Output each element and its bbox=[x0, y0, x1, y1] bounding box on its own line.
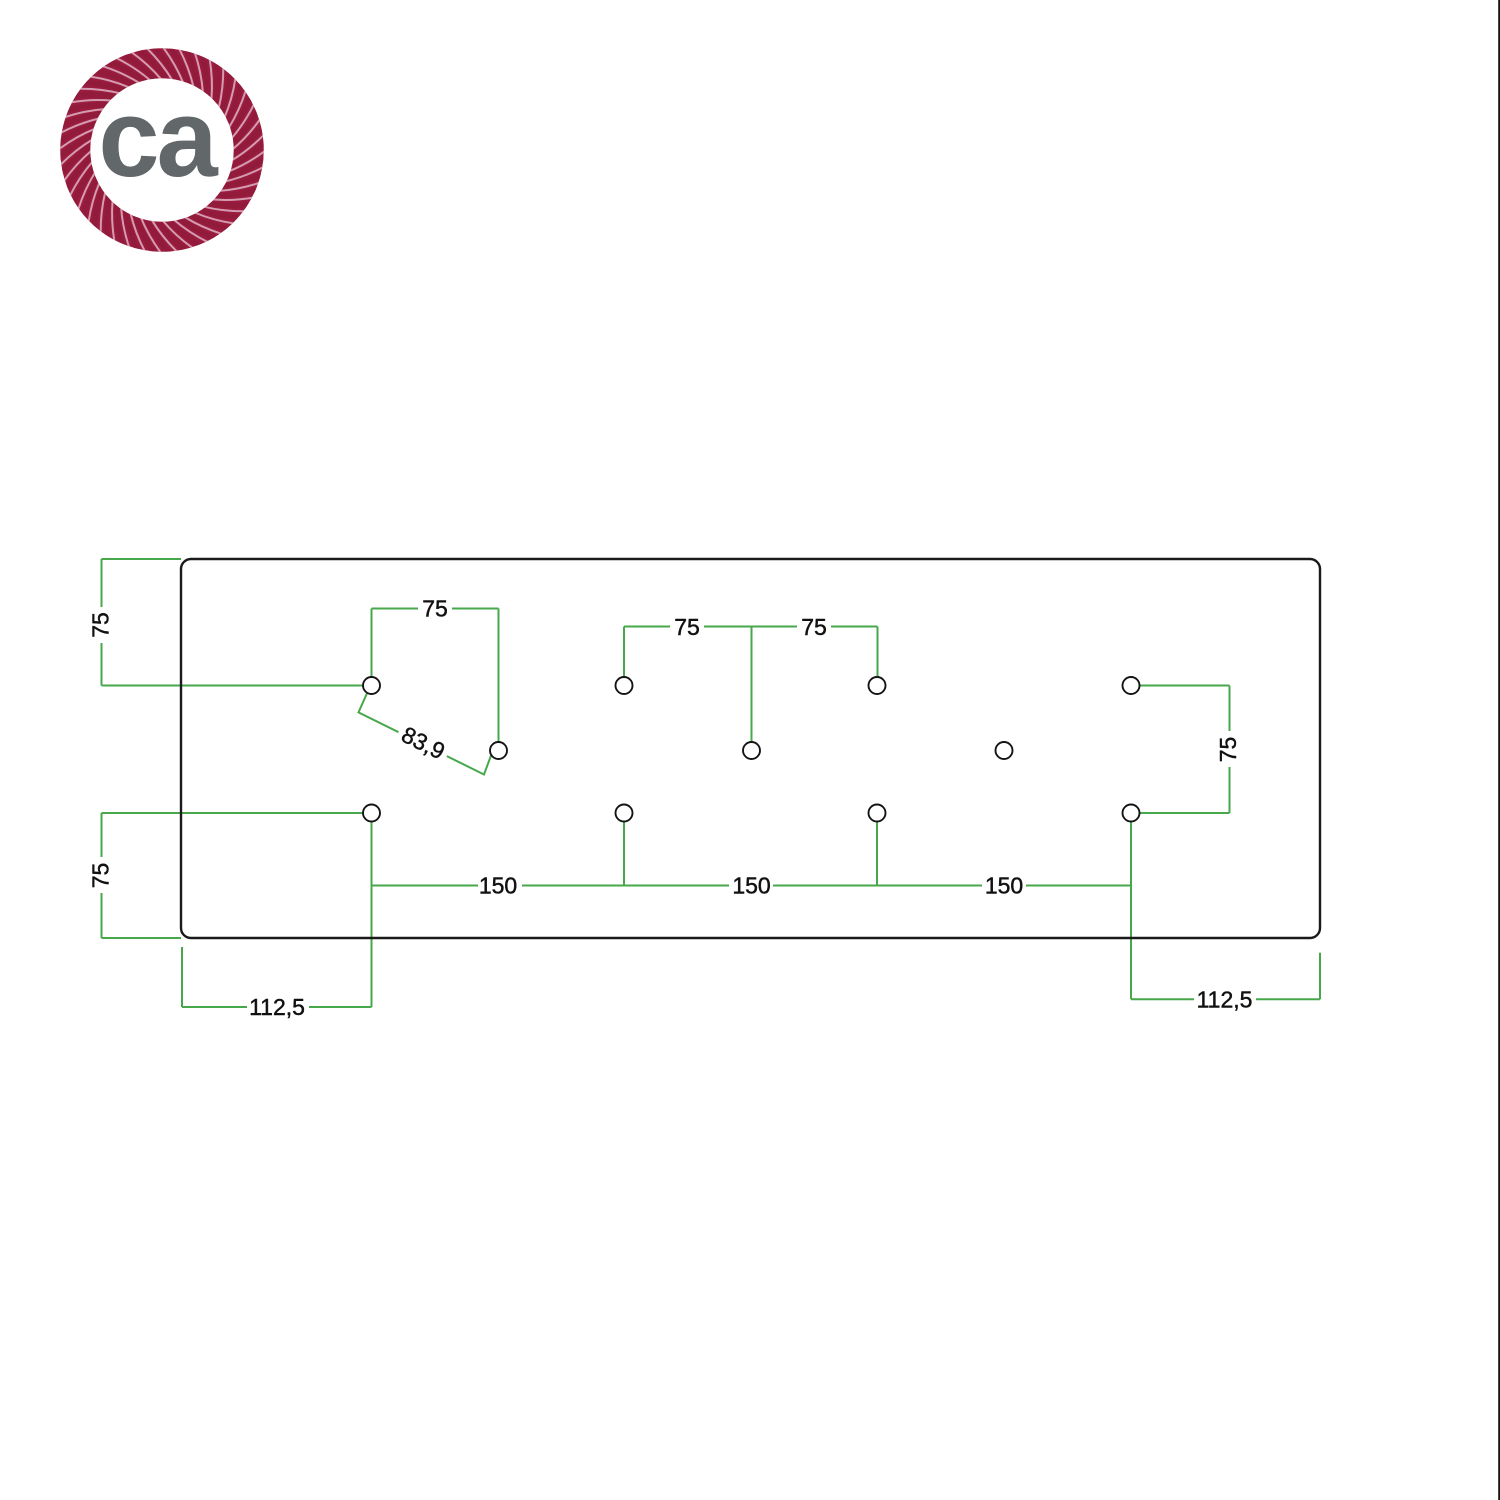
svg-text:75: 75 bbox=[422, 596, 448, 622]
svg-text:75: 75 bbox=[88, 863, 114, 889]
svg-text:150: 150 bbox=[732, 873, 770, 899]
svg-text:ca: ca bbox=[98, 77, 218, 200]
svg-text:75: 75 bbox=[674, 614, 700, 640]
svg-text:75: 75 bbox=[1215, 737, 1241, 763]
svg-text:112,5: 112,5 bbox=[249, 994, 305, 1020]
svg-text:150: 150 bbox=[479, 873, 517, 899]
svg-text:75: 75 bbox=[801, 614, 827, 640]
svg-text:75: 75 bbox=[88, 612, 114, 638]
svg-text:150: 150 bbox=[985, 873, 1023, 899]
svg-text:112,5: 112,5 bbox=[1197, 987, 1253, 1013]
